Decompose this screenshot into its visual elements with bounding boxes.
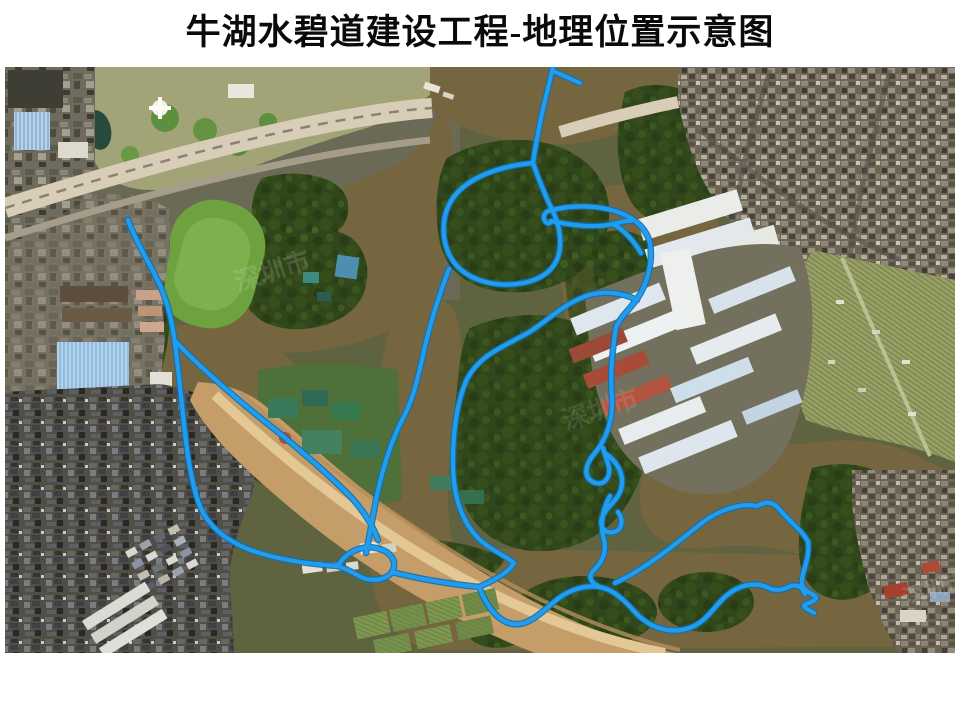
page-title: 牛湖水碧道建设工程-地理位置示意图 bbox=[0, 10, 960, 56]
map-canvas: 深圳市 深圳市 深圳市 bbox=[5, 67, 955, 653]
satellite-map: 深圳市 深圳市 深圳市 bbox=[5, 67, 955, 653]
